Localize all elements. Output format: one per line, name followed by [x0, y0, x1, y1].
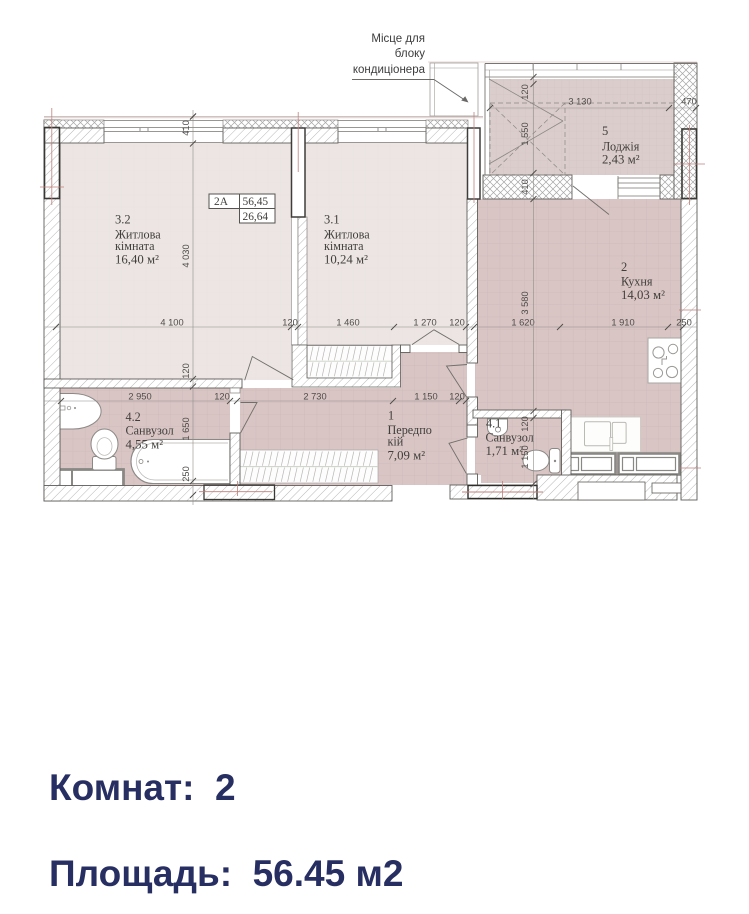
svg-text:3 130: 3 130 — [568, 97, 591, 107]
svg-text:2: 2 — [621, 260, 627, 274]
svg-text:4.2: 4.2 — [126, 410, 141, 424]
svg-text:1: 1 — [388, 409, 394, 423]
svg-text:2А: 2А — [214, 196, 229, 208]
svg-text:1,71 м²: 1,71 м² — [486, 444, 524, 458]
svg-text:120: 120 — [181, 363, 191, 379]
svg-text:410: 410 — [520, 179, 530, 195]
svg-text:1 650: 1 650 — [181, 417, 191, 440]
svg-text:1 550: 1 550 — [520, 122, 530, 145]
svg-text:120: 120 — [282, 318, 298, 328]
svg-text:кій: кій — [388, 435, 404, 449]
svg-text:кімната: кімната — [324, 239, 364, 253]
svg-text:26,64: 26,64 — [243, 211, 269, 223]
svg-text:4 030: 4 030 — [181, 244, 191, 267]
svg-text:3 580: 3 580 — [520, 291, 530, 314]
svg-text:250: 250 — [181, 466, 191, 482]
svg-text:Кухня: Кухня — [621, 275, 653, 289]
svg-text:120: 120 — [214, 392, 230, 402]
svg-text:кондиціонера: кондиціонера — [353, 64, 426, 76]
svg-text:2 730: 2 730 — [303, 392, 326, 402]
svg-text:2 950: 2 950 — [128, 392, 151, 402]
svg-text:7,09 м²: 7,09 м² — [388, 449, 426, 463]
svg-text:120: 120 — [520, 84, 530, 100]
svg-text:Лоджія: Лоджія — [602, 140, 640, 154]
svg-text:14,03 м²: 14,03 м² — [621, 288, 665, 302]
svg-text:Санвузол: Санвузол — [486, 431, 534, 445]
svg-text:56,45: 56,45 — [243, 196, 269, 208]
svg-text:120: 120 — [520, 416, 530, 432]
svg-text:16,40 м²: 16,40 м² — [115, 253, 159, 267]
svg-text:3.2: 3.2 — [115, 213, 131, 227]
svg-text:4 100: 4 100 — [160, 318, 183, 328]
svg-text:кімната: кімната — [115, 239, 155, 253]
svg-text:4.1: 4.1 — [486, 417, 501, 431]
svg-text:2,43 м²: 2,43 м² — [602, 153, 640, 167]
svg-text:250: 250 — [676, 318, 692, 328]
svg-text:120: 120 — [449, 392, 465, 402]
svg-text:блоку: блоку — [395, 48, 425, 60]
svg-text:120: 120 — [449, 318, 465, 328]
svg-text:410: 410 — [181, 120, 191, 136]
svg-text:1 270: 1 270 — [413, 318, 436, 328]
svg-text:Місце для: Місце для — [371, 33, 425, 45]
svg-text:1 620: 1 620 — [511, 318, 534, 328]
svg-text:1 150: 1 150 — [414, 392, 437, 402]
svg-text:3.1: 3.1 — [324, 213, 340, 227]
svg-text:470: 470 — [681, 97, 697, 107]
svg-text:4,55 м²: 4,55 м² — [126, 438, 164, 452]
svg-text:1 910: 1 910 — [611, 318, 634, 328]
svg-text:Санвузол: Санвузол — [126, 424, 174, 438]
svg-text:1 460: 1 460 — [336, 318, 359, 328]
svg-text:5: 5 — [602, 124, 608, 138]
svg-text:10,24 м²: 10,24 м² — [324, 253, 368, 267]
